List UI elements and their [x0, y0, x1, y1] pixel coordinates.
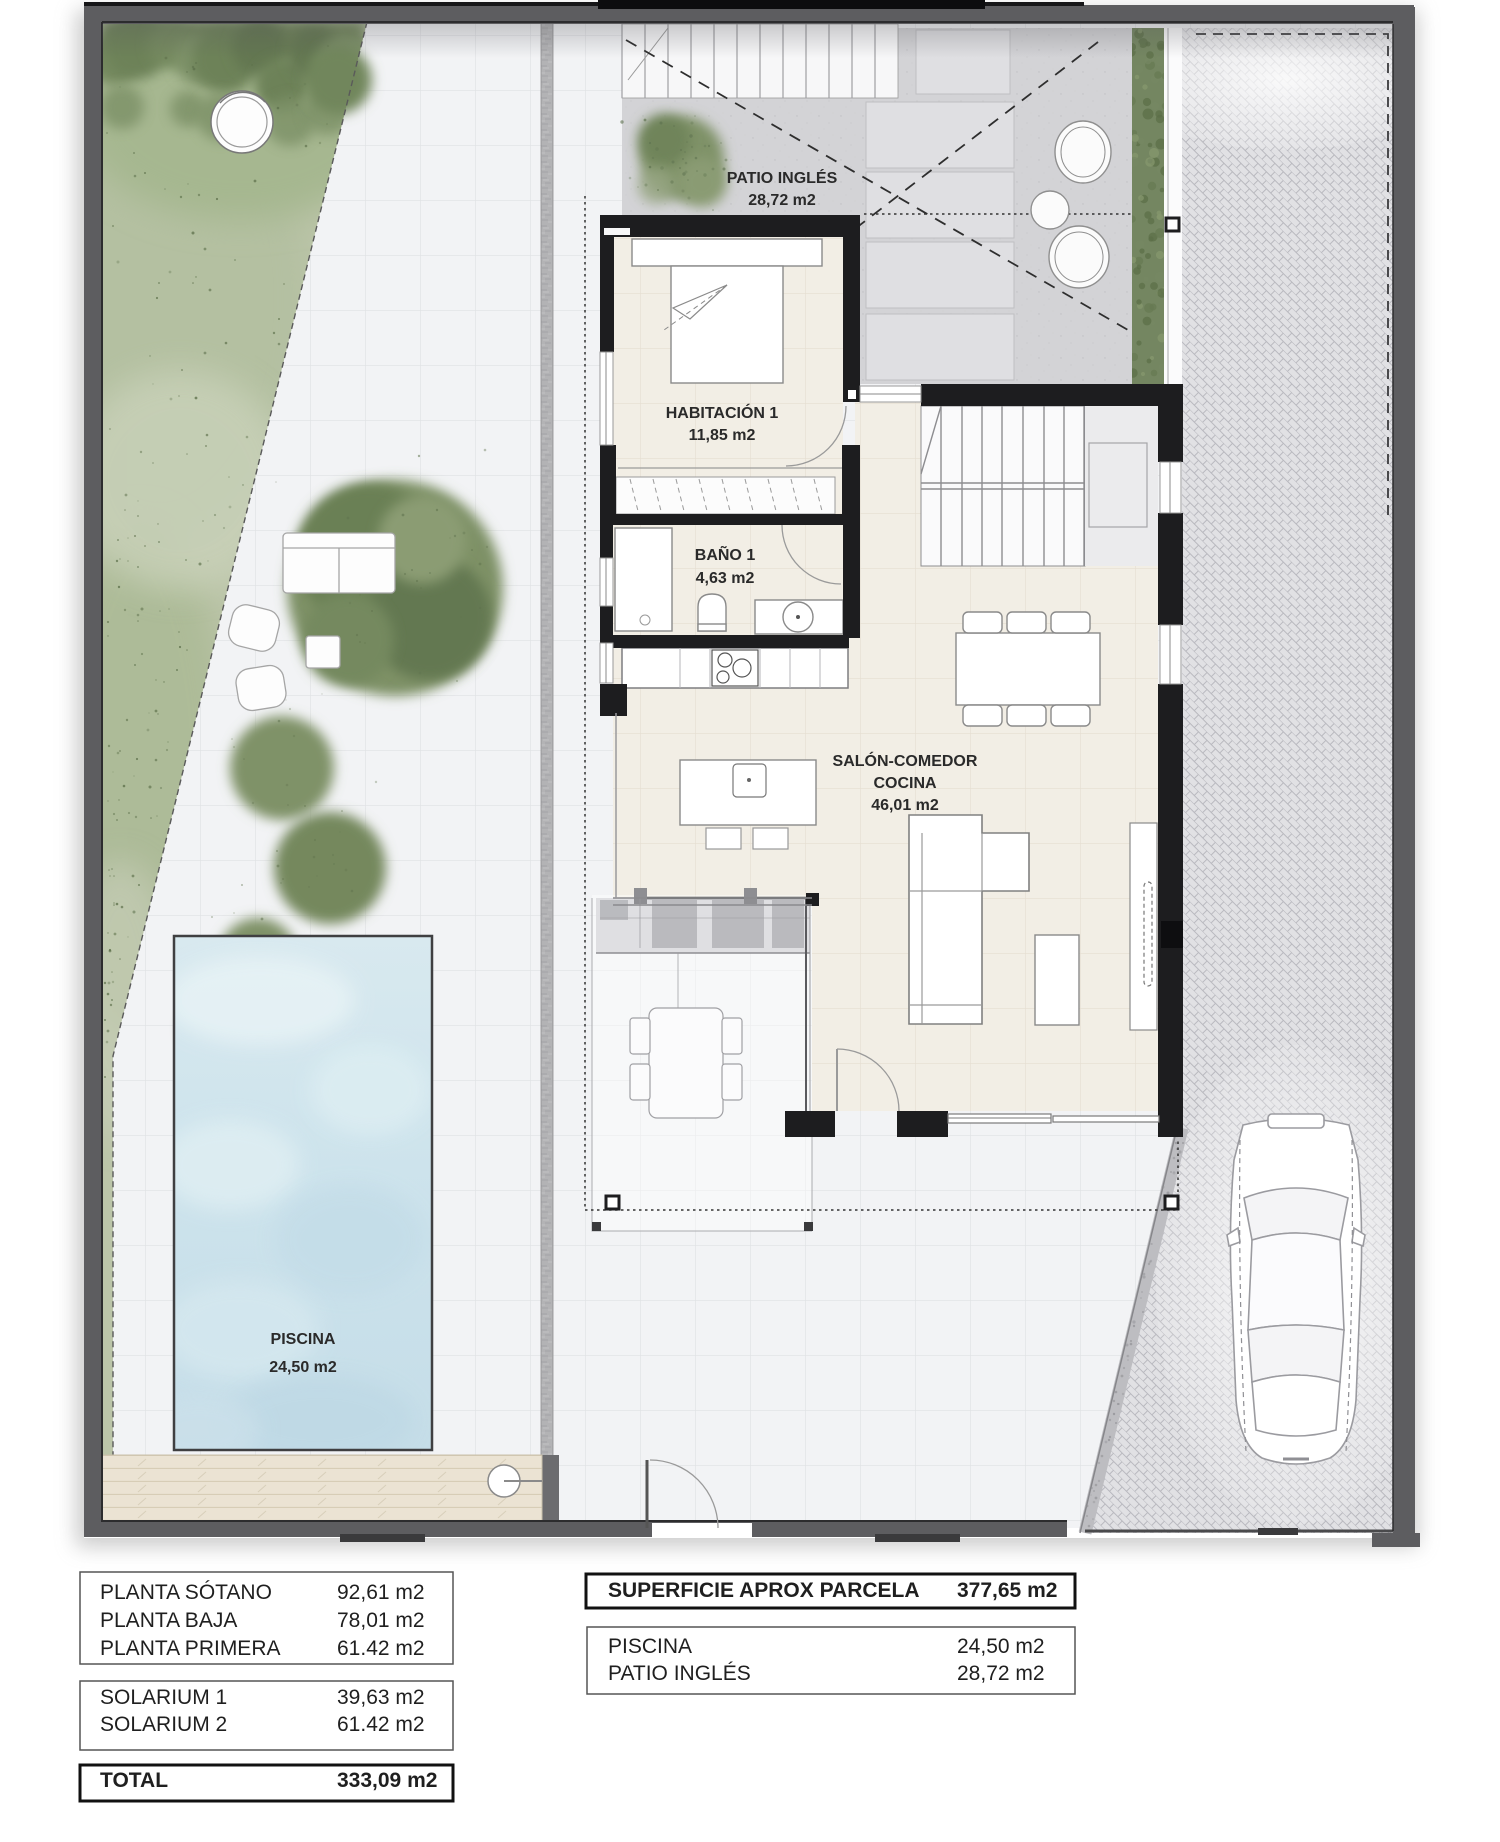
svg-text:SALÓN-COMEDOR: SALÓN-COMEDOR	[833, 751, 978, 770]
svg-text:PLANTA SÓTANO: PLANTA SÓTANO	[100, 1581, 272, 1604]
svg-text:61.42 m2: 61.42 m2	[337, 1637, 425, 1660]
svg-text:46,01 m2: 46,01 m2	[871, 797, 939, 814]
svg-text:28,72 m2: 28,72 m2	[957, 1662, 1045, 1685]
svg-text:24,50 m2: 24,50 m2	[269, 1359, 337, 1376]
svg-text:377,65 m2: 377,65 m2	[957, 1579, 1057, 1602]
svg-text:24,50 m2: 24,50 m2	[957, 1635, 1045, 1658]
svg-text:BAÑO 1: BAÑO 1	[695, 544, 756, 564]
svg-text:HABITACIÓN 1: HABITACIÓN 1	[666, 403, 779, 422]
svg-text:PATIO INGLÉS: PATIO INGLÉS	[608, 1662, 751, 1685]
svg-text:TOTAL: TOTAL	[100, 1769, 168, 1792]
svg-text:SOLARIUM 2: SOLARIUM 2	[100, 1713, 227, 1736]
svg-text:39,63 m2: 39,63 m2	[337, 1686, 425, 1709]
svg-text:11,85 m2: 11,85 m2	[689, 427, 756, 444]
svg-text:4,63 m2: 4,63 m2	[696, 570, 755, 587]
svg-text:PATIO INGLÉS: PATIO INGLÉS	[727, 168, 838, 187]
svg-text:61.42 m2: 61.42 m2	[337, 1713, 425, 1736]
svg-text:COCINA: COCINA	[873, 775, 937, 792]
svg-text:PISCINA: PISCINA	[608, 1635, 692, 1658]
svg-text:PLANTA PRIMERA: PLANTA PRIMERA	[100, 1637, 281, 1660]
svg-text:92,61 m2: 92,61 m2	[337, 1581, 425, 1604]
svg-text:78,01 m2: 78,01 m2	[337, 1609, 425, 1632]
svg-text:PLANTA BAJA: PLANTA BAJA	[100, 1609, 237, 1632]
svg-text:SUPERFICIE APROX PARCELA: SUPERFICIE APROX PARCELA	[608, 1579, 920, 1602]
svg-text:28,72 m2: 28,72 m2	[748, 192, 816, 209]
svg-text:333,09 m2: 333,09 m2	[337, 1769, 437, 1792]
svg-text:PISCINA: PISCINA	[271, 1331, 336, 1348]
svg-text:SOLARIUM 1: SOLARIUM 1	[100, 1686, 227, 1709]
